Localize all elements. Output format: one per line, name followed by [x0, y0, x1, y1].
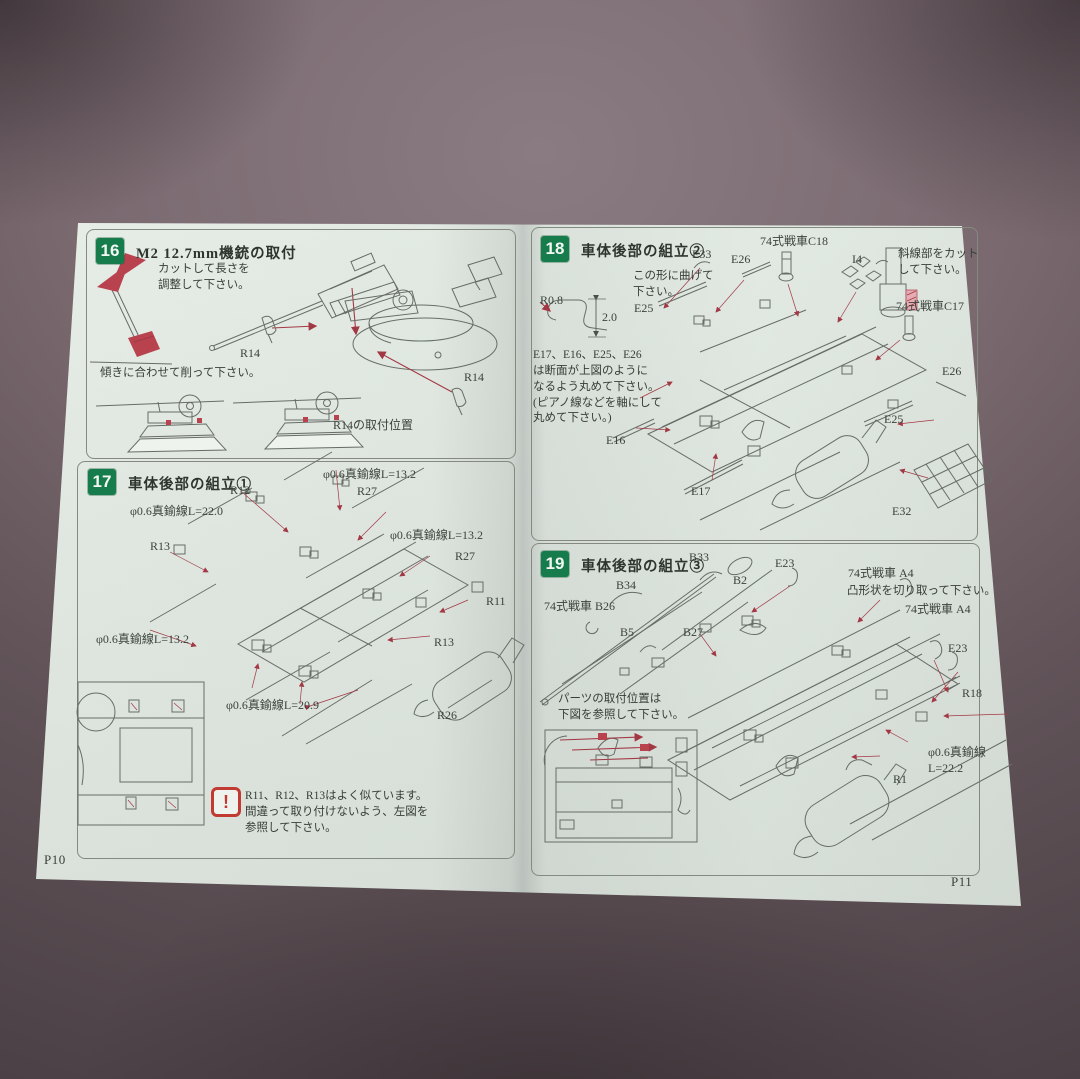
label-e26-right: E26	[942, 364, 961, 380]
step16-panel	[86, 229, 516, 459]
label-e26-top: E26	[731, 252, 750, 268]
label-e33: E33	[692, 247, 711, 263]
label-r27-top: R27	[357, 484, 377, 500]
label-b27: B27	[683, 625, 703, 641]
label-b2: B2	[733, 573, 747, 589]
label-r18: R18	[962, 686, 982, 702]
step19-title: 車体後部の組立③	[581, 555, 705, 576]
label-e23-left: E23	[775, 556, 794, 572]
label-e16: E16	[606, 433, 625, 449]
step16-note-r14-position: R14の取付位置	[333, 418, 413, 434]
step18-title: 車体後部の組立②	[581, 240, 705, 261]
page-number-right: P11	[951, 874, 972, 890]
label-wire-13-bottom: φ0.6真鍮線L=13.2	[96, 632, 189, 648]
label-r14-b: R14	[464, 370, 484, 386]
label-c18: 74式戦車C18	[760, 234, 828, 250]
label-wire-22: φ0.6真鍮線L=22.0	[130, 504, 223, 520]
label-c17: 74式戦車C17	[896, 299, 964, 315]
label-r26: R26	[437, 708, 457, 724]
warning-icon: !	[211, 787, 241, 817]
step16-title: M2 12.7mm機銃の取付	[136, 242, 297, 263]
label-i4: I4	[852, 252, 862, 268]
step19-note-cut: 凸形状を切り取って下さい。	[847, 584, 996, 600]
label-r27-right: R27	[455, 549, 475, 565]
label-a4-top: 74式戦車 A4	[848, 566, 914, 582]
label-e17: E17	[691, 484, 710, 500]
label-r13-right: R13	[434, 635, 454, 651]
label-wire-13-right: φ0.6真鍮線L=13.2	[390, 528, 483, 544]
step18-note-section: E17、E16、E25、E26 は断面が上図のように なるよう丸めて下さい。 (…	[533, 348, 662, 427]
label-wire-222: φ0.6真鍮線 L=22.2	[928, 745, 986, 776]
label-r1: R1	[893, 772, 907, 788]
step18-badge: 18	[541, 236, 569, 262]
step16-badge: 16	[96, 238, 124, 264]
step18-note-bend: この形に曲げて 下さい。	[633, 269, 714, 301]
step17-warning-text: R11、R12、R13はよく似ています。 間違って取り付けないよう、左図を 参照…	[245, 789, 428, 837]
label-e25-left: E25	[634, 301, 653, 317]
label-r12: R12	[230, 483, 250, 499]
label-a4-right: 74式戦車 A4	[905, 602, 971, 618]
label-b33: B33	[689, 550, 709, 566]
label-e23-right: E23	[948, 641, 967, 657]
label-r13-left: R13	[150, 539, 170, 555]
label-dim-20: 2.0	[602, 310, 617, 326]
label-b34: B34	[616, 578, 636, 594]
step16-note-cut: カットして長さを 調整して下さい。	[158, 262, 250, 294]
step18-note-hatch: 斜線部をカット して下さい。	[898, 247, 979, 279]
label-wire-209: φ0.6真鍮線L=20.9	[226, 698, 319, 714]
page-number-left: P10	[44, 852, 66, 868]
label-b26: 74式戦車 B26	[544, 599, 615, 615]
label-wire-13-top: φ0.6真鍮線L=13.2	[323, 467, 416, 483]
step17-badge: 17	[88, 469, 116, 495]
step16-note-shave: 傾きに合わせて削って下さい。	[100, 366, 260, 382]
label-e32: E32	[892, 504, 911, 520]
photo-of-instruction-manual: { "colors":{ "badge_green":"#177c4b", "a…	[0, 0, 1080, 1079]
label-r14-a: R14	[240, 346, 260, 362]
step19-note-position: パーツの取付位置は 下図を参照して下さい。	[558, 692, 684, 724]
label-b5: B5	[620, 625, 634, 641]
label-r08: R0.8	[540, 293, 563, 309]
label-e25-right: E25	[884, 412, 903, 428]
step19-badge: 19	[541, 551, 569, 577]
label-r11: R11	[486, 594, 506, 610]
exclamation-glyph: !	[223, 793, 229, 811]
